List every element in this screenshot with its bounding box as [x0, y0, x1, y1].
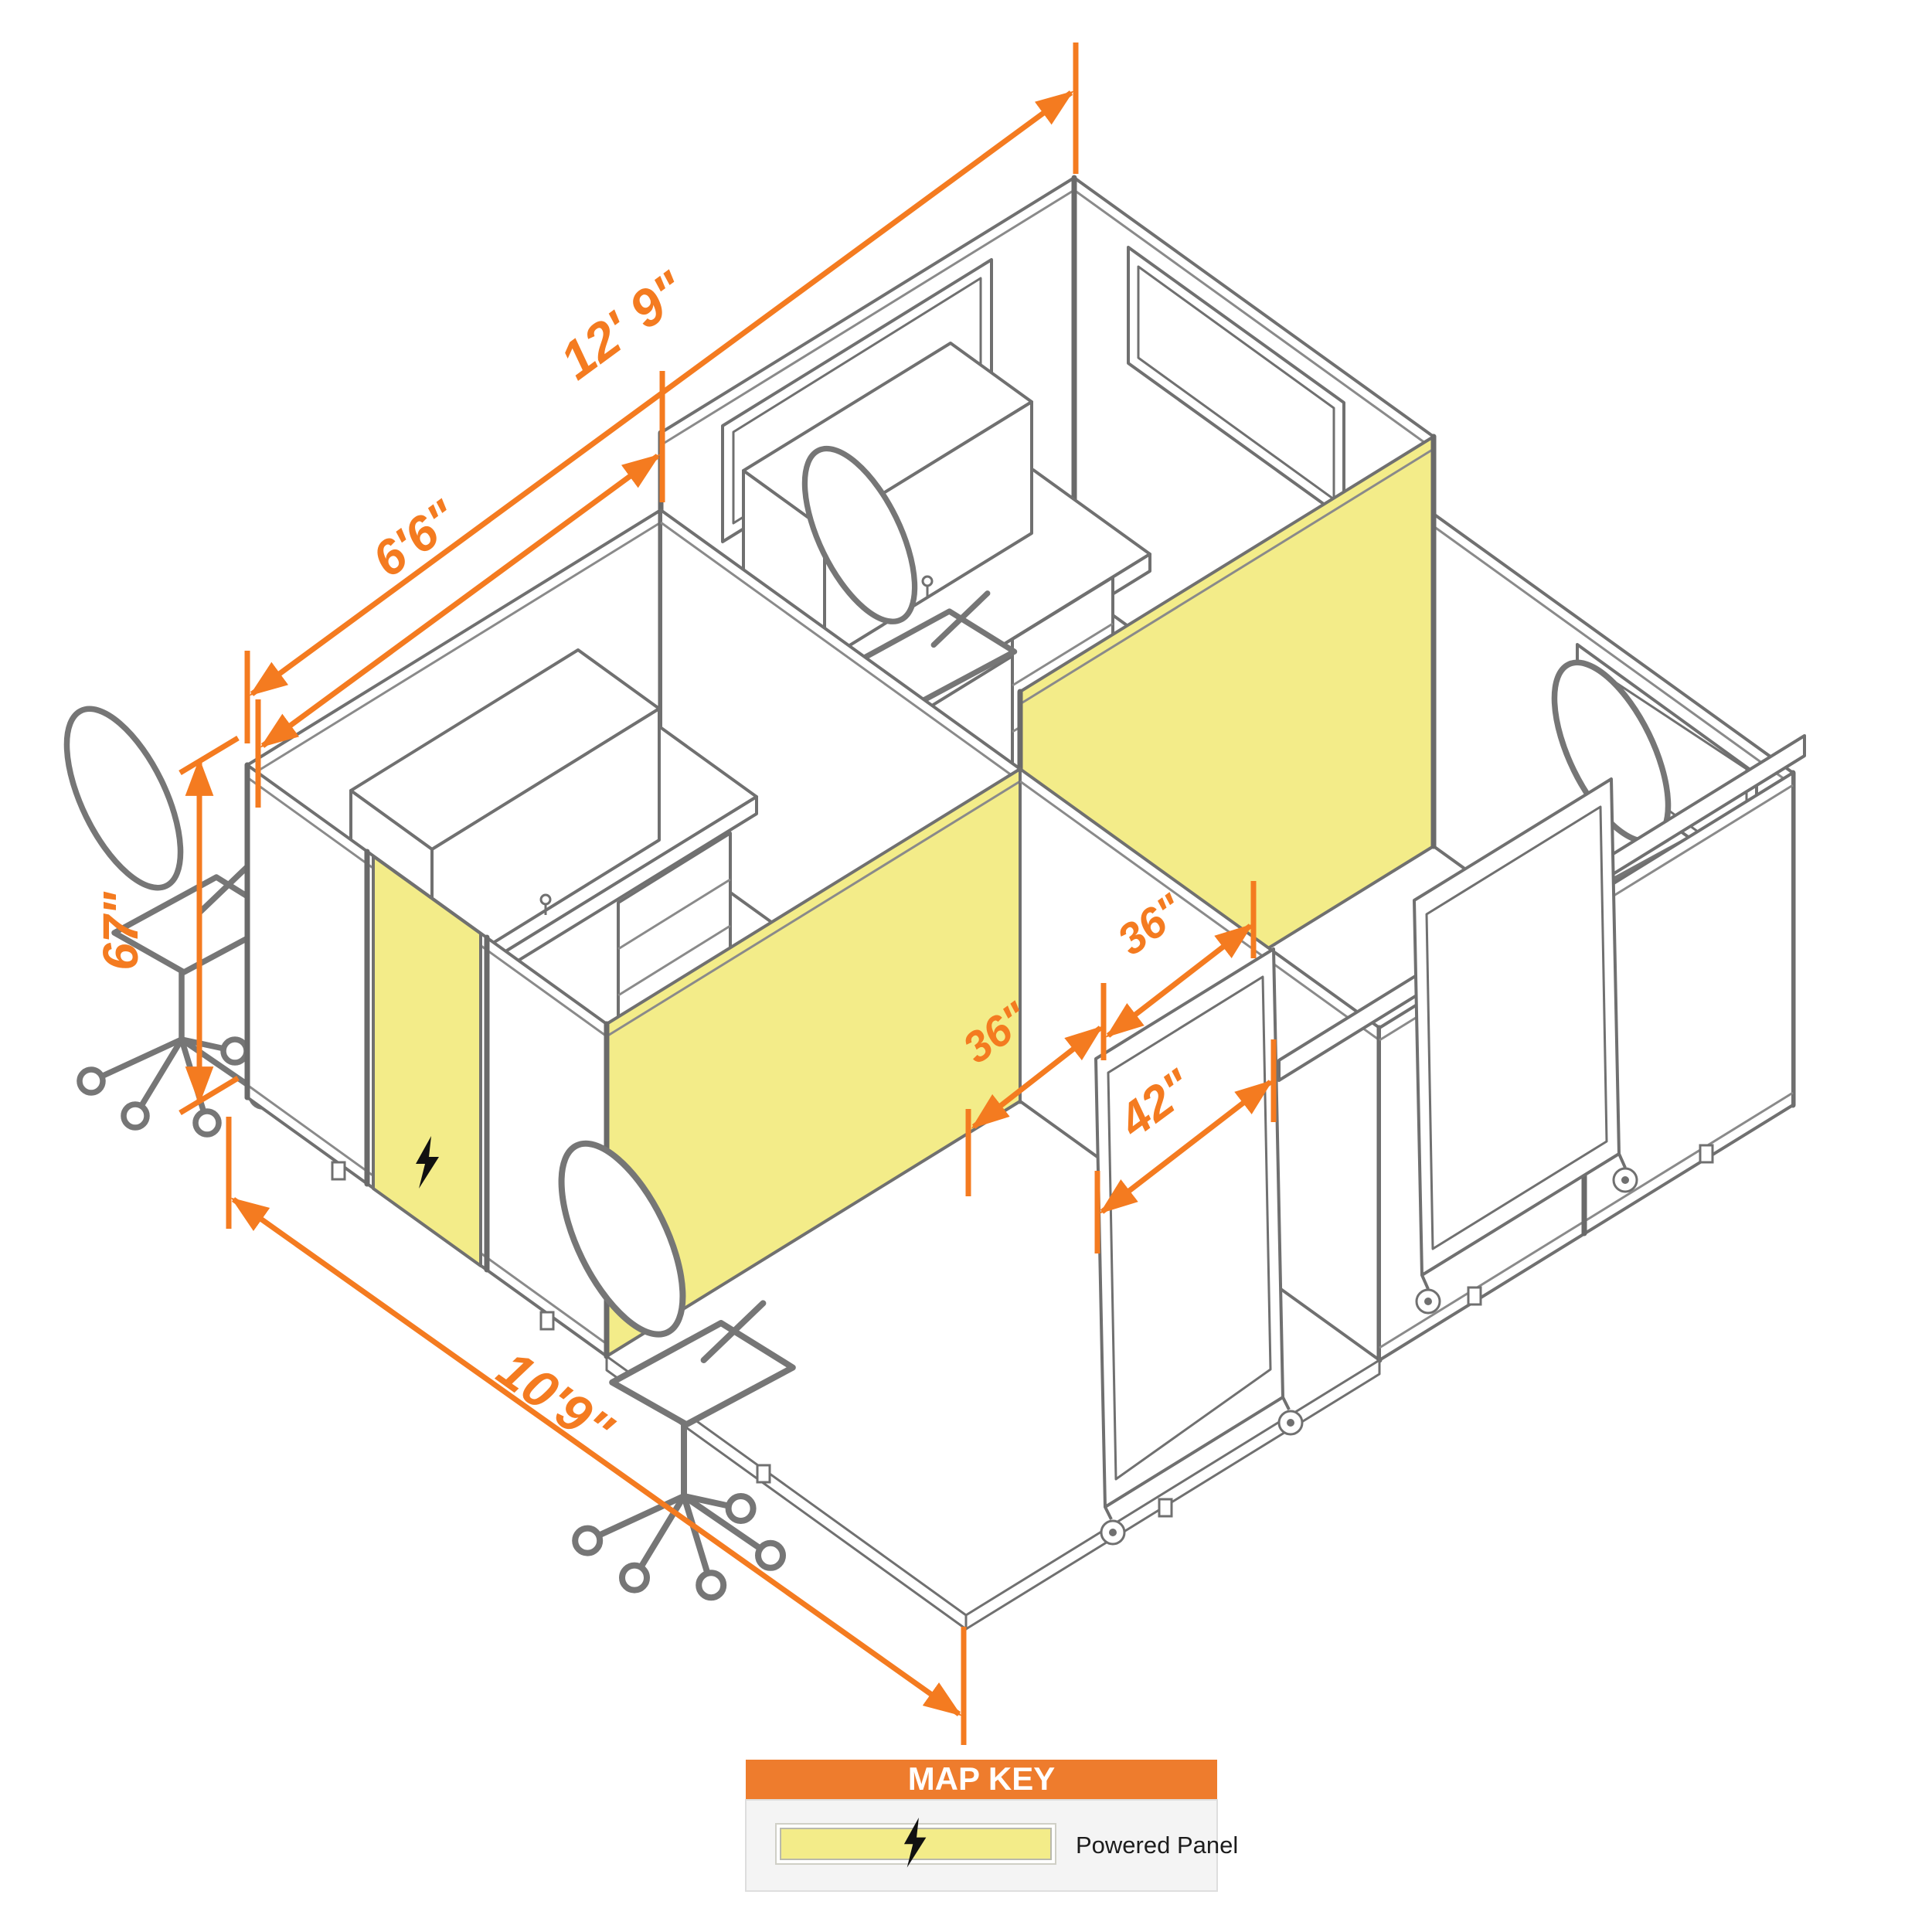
legend-label: Powered Panel: [1076, 1832, 1238, 1859]
dim-total-width-label: 10'9": [487, 1339, 624, 1460]
mobile-panel-front: [1096, 949, 1302, 1544]
map-key: MAP KEY Powered Panel: [746, 1760, 1238, 1891]
isometric-cubicle-drawing: 12' 9" 6'6" 67" 10'9" 36" 36" 42": [0, 0, 1932, 1932]
dim-cubicle-depth-label: 6'6": [362, 489, 468, 588]
caster-wheel: [1101, 1507, 1124, 1544]
caster-wheel: [1279, 1397, 1302, 1434]
dim-panel-height-label: 67": [93, 892, 148, 971]
map-key-title: MAP KEY: [908, 1760, 1056, 1797]
cubicle-plan-screenshot: 12' 9" 6'6" 67" 10'9" 36" 36" 42": [0, 0, 1932, 1932]
dim-total-depth-label: 12' 9": [549, 260, 697, 391]
powered-panel-swatch: [776, 1818, 1056, 1868]
